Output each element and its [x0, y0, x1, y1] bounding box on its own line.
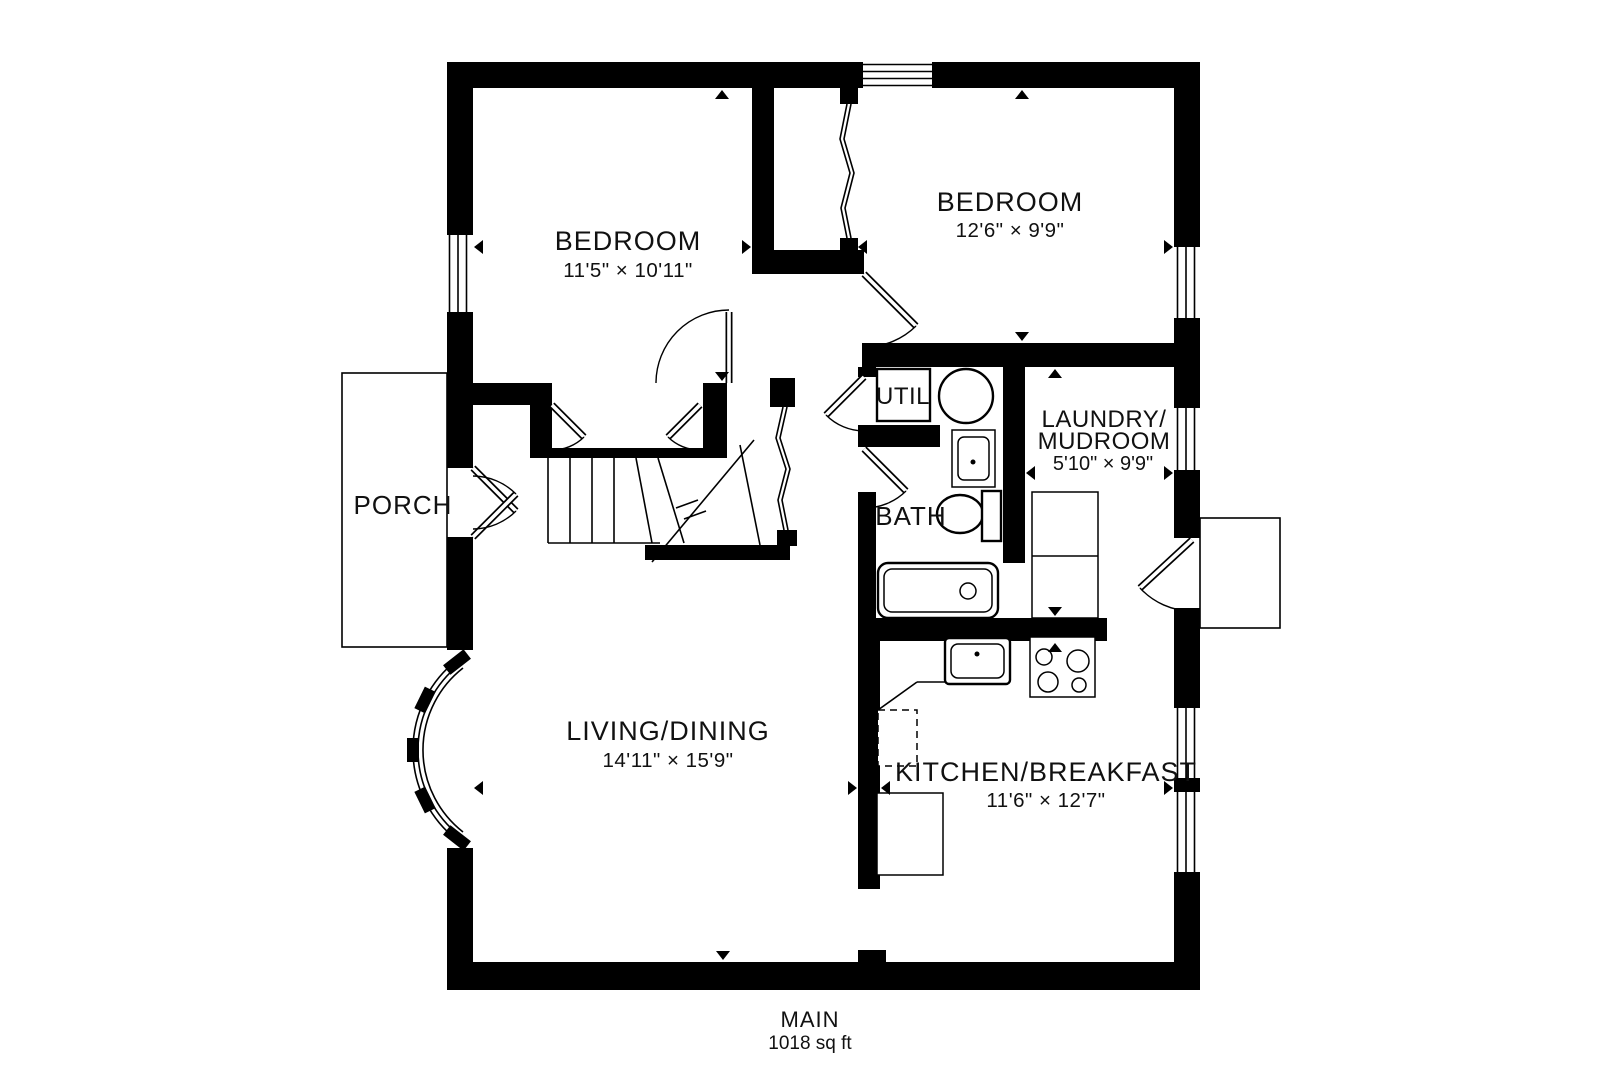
- stairs: [548, 440, 760, 562]
- bow-window-icon: [407, 649, 471, 850]
- water-heater-icon: [939, 369, 993, 423]
- kitchen-name: KITCHEN/BREAKFAST: [895, 757, 1197, 787]
- living-label: LIVING/DINING 14'11" × 15'9": [566, 716, 770, 772]
- bedroom2-right-window-icon: [1178, 247, 1195, 318]
- floor-area: 1018 sq ft: [768, 1033, 852, 1054]
- stair-bifold-door-icon: [776, 407, 790, 530]
- laundry-label: LAUNDRY/ MUDROOM 5'10" × 9'9": [1038, 406, 1171, 475]
- living-dims: 14'11" × 15'9": [602, 749, 733, 772]
- bath-sink-icon: [952, 430, 995, 487]
- bifold-closet-doors-icon: [840, 104, 854, 238]
- bedroom1-label: BEDROOM 11'5" × 10'11": [555, 226, 702, 282]
- floorplan-page: BEDROOM 11'5" × 10'11" BEDROOM 12'6" × 9…: [0, 0, 1620, 1080]
- bedroom2-name: BEDROOM: [937, 187, 1084, 217]
- porch-label: PORCH: [354, 490, 453, 520]
- bedroom1-left-window-icon: [450, 235, 467, 312]
- floor-name: MAIN: [781, 1007, 840, 1032]
- kitchen-sink-icon: [945, 638, 1010, 684]
- util-label: UTIL: [876, 383, 930, 410]
- bedroom1-closet-doors-icon: [552, 405, 700, 450]
- util-door-icon: [826, 377, 864, 431]
- bath-label: BATH: [875, 501, 946, 531]
- bedroom1-dims: 11'5" × 10'11": [563, 259, 693, 282]
- bedroom2-label: BEDROOM 12'6" × 9'9": [937, 187, 1084, 242]
- floor-label: MAIN 1018 sq ft: [768, 1007, 852, 1054]
- bedroom2-door-icon: [864, 274, 916, 347]
- living-name: LIVING/DINING: [566, 716, 770, 746]
- washer-dryer-icon: [1032, 492, 1098, 618]
- bedroom2-dims: 12'6" × 9'9": [956, 219, 1065, 242]
- laundry-name-line2: MUDROOM: [1038, 428, 1171, 455]
- bathtub-icon: [878, 563, 998, 618]
- entry-door-icon: [473, 468, 516, 537]
- entry-stoop: [1200, 518, 1280, 628]
- bedroom1-name: BEDROOM: [555, 226, 702, 256]
- stove-icon: [1030, 637, 1095, 697]
- stair-break-line-icon: [652, 440, 754, 562]
- laundry-dims: 5'10" × 9'9": [1053, 453, 1153, 475]
- laundry-right-window-icon: [1178, 408, 1195, 470]
- floorplan-drawing: BEDROOM 11'5" × 10'11" BEDROOM 12'6" × 9…: [0, 0, 1620, 1080]
- back-door-icon: [1140, 540, 1192, 611]
- kitchen-dims: 11'6" × 12'7": [986, 789, 1105, 812]
- hall-top-window-icon: [863, 65, 932, 86]
